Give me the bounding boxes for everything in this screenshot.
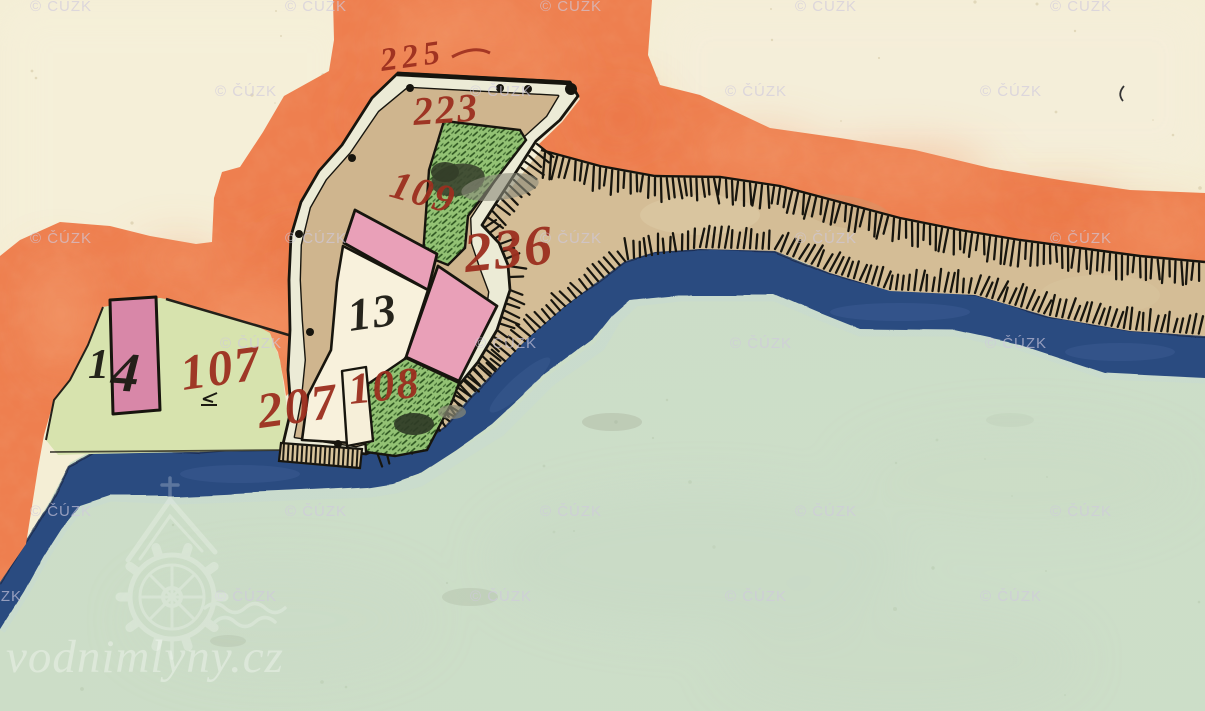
svg-text:© ČÚZK: © ČÚZK bbox=[980, 83, 1042, 100]
svg-text:© ČÚZK: © ČÚZK bbox=[1050, 230, 1112, 247]
svg-text:© ČÚZK: © ČÚZK bbox=[540, 503, 602, 520]
svg-text:© ČÚZK: © ČÚZK bbox=[30, 503, 92, 520]
svg-text:© ČÚZK: © ČÚZK bbox=[215, 83, 277, 100]
svg-text:© ČÚZK: © ČÚZK bbox=[285, 503, 347, 520]
svg-text:© ČÚZK: © ČÚZK bbox=[795, 503, 857, 520]
svg-text:© ČÚZK: © ČÚZK bbox=[540, 230, 602, 247]
svg-text:© ČÚZK: © ČÚZK bbox=[725, 588, 787, 605]
svg-text:13: 13 bbox=[344, 283, 401, 340]
svg-text:© ČÚZK: © ČÚZK bbox=[470, 588, 532, 605]
svg-text:© ČÚZK: © ČÚZK bbox=[30, 230, 92, 247]
svg-text:© ČÚZK: © ČÚZK bbox=[475, 335, 537, 352]
svg-text:207: 207 bbox=[253, 372, 342, 439]
svg-text:© ČÚZK: © ČÚZK bbox=[220, 335, 282, 352]
svg-text:© ČÚZK: © ČÚZK bbox=[30, 0, 92, 15]
svg-text:© ČÚZK: © ČÚZK bbox=[0, 588, 22, 605]
svg-text:© ČÚZK: © ČÚZK bbox=[795, 230, 857, 247]
svg-text:© ČÚZK: © ČÚZK bbox=[730, 335, 792, 352]
svg-text:© ČÚZK: © ČÚZK bbox=[470, 83, 532, 100]
svg-text:236: 236 bbox=[460, 214, 557, 285]
svg-text:© ČÚZK: © ČÚZK bbox=[985, 335, 1047, 352]
svg-text:1: 1 bbox=[88, 342, 111, 388]
svg-text:© ČÚZK: © ČÚZK bbox=[795, 0, 857, 15]
svg-text:vodnimlyny.cz: vodnimlyny.cz bbox=[6, 631, 284, 683]
svg-text:4: 4 bbox=[108, 341, 143, 405]
svg-text:© ČÚZK: © ČÚZK bbox=[285, 230, 347, 247]
svg-text:© ČÚZK: © ČÚZK bbox=[540, 0, 602, 15]
svg-text:© ČÚZK: © ČÚZK bbox=[725, 83, 787, 100]
svg-text:© ČÚZK: © ČÚZK bbox=[980, 588, 1042, 605]
svg-text:© ČÚZK: © ČÚZK bbox=[1050, 0, 1112, 15]
svg-text:© ČÚZK: © ČÚZK bbox=[285, 0, 347, 15]
svg-text:© ČÚZK: © ČÚZK bbox=[1050, 503, 1112, 520]
svg-text:108: 108 bbox=[346, 358, 423, 414]
